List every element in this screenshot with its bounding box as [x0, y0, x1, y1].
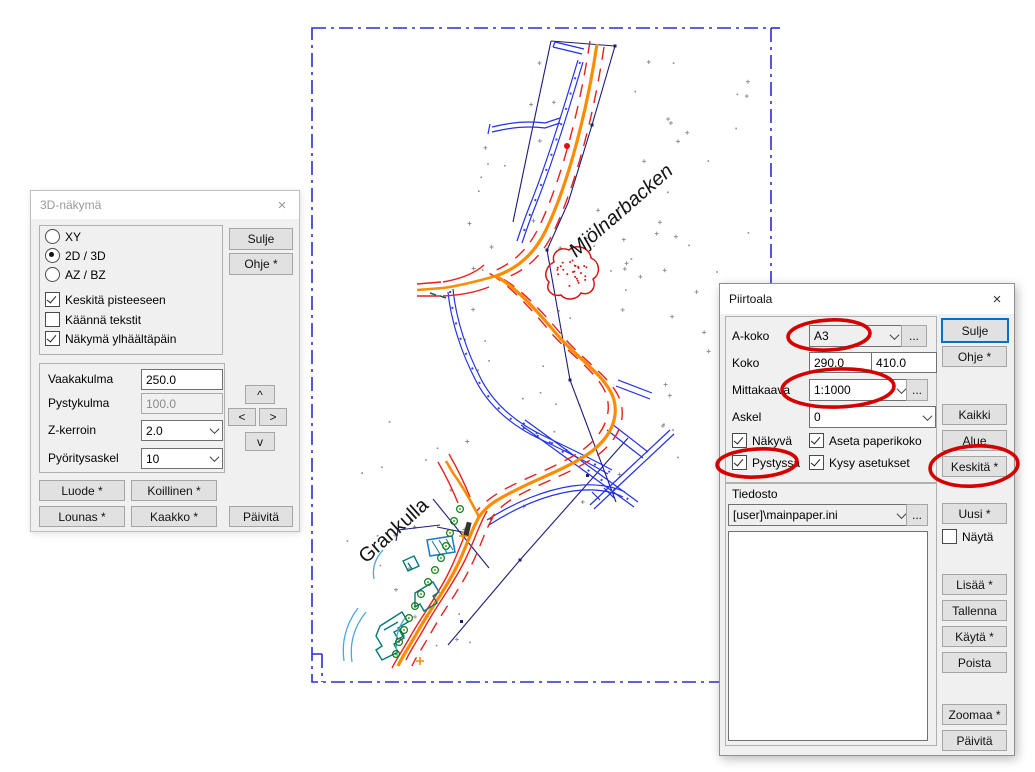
checkbox-aseta-paperikoko[interactable]: Aseta paperikoko [809, 433, 922, 448]
pyoritysaskel-value: 10 [146, 452, 159, 466]
paper-border [312, 28, 780, 682]
chevron-down-icon [890, 330, 900, 340]
app-window: { "map": { "labels": [ { "text": "Mjölna… [0, 0, 1035, 772]
kayta-button[interactable]: Käytä * [942, 626, 1007, 647]
radio-2d3d-circle[interactable] [45, 248, 60, 263]
dialog-3d-nakyma: 3D-näkymä × XY 2D / 3D AZ / BZ Keskitä p… [30, 190, 300, 532]
dialog-piirtoala-titlebar[interactable]: Piirtoala × [720, 284, 1014, 314]
terrain-point-cloud [347, 60, 750, 646]
pystykulma-value: 100.0 [146, 397, 176, 411]
chevron-down-icon [923, 411, 933, 421]
luode-button[interactable]: Luode * [39, 480, 125, 501]
vaakakulma-value: 250.0 [146, 373, 176, 387]
checkbox-pystyssa[interactable]: Pystyssä [732, 455, 800, 470]
dialog-piirtoala-title: Piirtoala [720, 292, 772, 306]
tiedosto-more-button[interactable]: ... [906, 504, 928, 526]
kaakko-button[interactable]: Kaakko * [131, 506, 217, 527]
orange-cross-markers [416, 532, 467, 665]
checkbox-kysy-asetukset[interactable]: Kysy asetukset [809, 455, 910, 470]
ditch-ticks [450, 62, 636, 505]
radio-xy[interactable]: XY [45, 229, 81, 244]
chevron-down-icon [210, 452, 220, 462]
checkbox-keskita-pisteeseen-box[interactable] [45, 292, 60, 307]
hatched-building [427, 536, 455, 556]
checkbox-kaanna-tekstit[interactable]: Käännä tekstit [45, 312, 141, 327]
mittakaava-select[interactable]: 1:1000 [809, 379, 910, 401]
tiedosto-value: [user]\mainpaper.ini [733, 508, 838, 522]
a-koko-select[interactable]: A3 [809, 325, 903, 347]
shore-arcs [343, 550, 405, 662]
keskita-button[interactable]: Keskitä * [942, 456, 1007, 477]
radio-azbz-circle[interactable] [45, 267, 60, 282]
dialog-3d-title: 3D-näkymä [31, 198, 101, 212]
red-stipple-dots [556, 260, 587, 287]
koko-label: Koko [732, 356, 759, 370]
radio-xy-circle[interactable] [45, 229, 60, 244]
sulje-button[interactable]: Sulje [941, 318, 1009, 343]
a-koko-label: A-koko [732, 329, 769, 343]
kaikki-button[interactable]: Kaikki [942, 404, 1007, 425]
checkbox-kaanna-tekstit-label: Käännä tekstit [65, 313, 141, 327]
rotate-down-button[interactable]: v [245, 432, 275, 451]
checkbox-pystyssa-box[interactable] [732, 455, 747, 470]
vaakakulma-input[interactable]: 250.0 [141, 369, 223, 390]
road-edges [392, 41, 622, 668]
tree-markers [393, 506, 464, 658]
checkbox-kysy-asetukset-label: Kysy asetukset [829, 456, 910, 470]
checkbox-nakyma-ylhaaltapain[interactable]: Näkymä ylhäältäpäin [45, 331, 176, 346]
chevron-down-icon [210, 424, 220, 434]
radio-azbz-label: AZ / BZ [65, 268, 106, 282]
paivita-button[interactable]: Päivitä [942, 730, 1007, 751]
a-koko-value: A3 [814, 329, 829, 343]
mittakaava-more-button[interactable]: ... [906, 379, 928, 401]
vaakakulma-label: Vaakakulma [48, 372, 113, 386]
culvert [463, 522, 471, 537]
koko-width-input[interactable]: 290.0 [809, 352, 875, 373]
close-icon[interactable]: × [980, 292, 1014, 307]
pystykulma-label: Pystykulma [48, 396, 109, 410]
radio-azbz[interactable]: AZ / BZ [45, 267, 106, 282]
dialog-piirtoala: Piirtoala × A-koko A3 ... Koko 290.0 410… [719, 283, 1015, 756]
askel-select[interactable]: 0 [809, 406, 936, 428]
pystykulma-input: 100.0 [141, 393, 223, 414]
koko-height-value: 410.0 [876, 356, 906, 370]
map-label-mjolnarbacken: Mjölnarbacken [565, 160, 678, 262]
blue-ditches [448, 42, 674, 525]
boundary-nodes [460, 45, 617, 624]
koko-height-input[interactable]: 410.0 [871, 352, 937, 373]
checkbox-keskita-pisteeseen[interactable]: Keskitä pisteeseen [45, 292, 166, 307]
boundary-lines [396, 41, 628, 645]
mittakaava-value: 1:1000 [814, 383, 851, 397]
checkbox-nayta-label: Näytä [962, 530, 993, 544]
checkbox-kaanna-tekstit-box[interactable] [45, 312, 60, 327]
pyoritysaskel-label: Pyöritysaskel [48, 451, 119, 465]
paivita-button[interactable]: Päivitä [229, 506, 293, 527]
uusi-button[interactable]: Uusi * [942, 503, 1007, 524]
map-label-grankulla: Grankulla [355, 494, 434, 568]
a-koko-more-button[interactable]: ... [901, 325, 927, 347]
main-road [398, 44, 615, 666]
rotate-right-button[interactable]: > [259, 408, 287, 426]
zoomaa-button[interactable]: Zoomaa * [942, 704, 1007, 725]
askel-label: Askel [732, 410, 761, 424]
z-kerroin-label: Z-kerroin [48, 423, 96, 437]
rotate-up-button[interactable]: ^ [245, 385, 275, 404]
close-icon[interactable]: × [265, 198, 299, 213]
checkbox-pystyssa-label: Pystyssä [752, 456, 800, 470]
tallenna-button[interactable]: Tallenna [942, 600, 1007, 621]
dialog-3d-titlebar[interactable]: 3D-näkymä × [31, 191, 299, 219]
z-kerroin-select[interactable]: 2.0 [141, 420, 223, 441]
checkbox-nakyva[interactable]: Näkyvä [732, 433, 792, 448]
checkbox-aseta-paperikoko-box[interactable] [809, 433, 824, 448]
radio-2d3d-label: 2D / 3D [65, 249, 106, 263]
radio-2d3d[interactable]: 2D / 3D [45, 248, 106, 263]
z-kerroin-value: 2.0 [146, 424, 163, 438]
checkbox-nakyma-ylhaaltapain-label: Näkymä ylhäältäpäin [65, 332, 176, 346]
koillinen-button[interactable]: Koillinen * [131, 480, 217, 501]
checkbox-keskita-pisteeseen-label: Keskitä pisteeseen [65, 293, 166, 307]
pyoritysaskel-select[interactable]: 10 [141, 448, 223, 469]
checkbox-nakyma-ylhaaltapain-box[interactable] [45, 331, 60, 346]
lisaa-button[interactable]: Lisää * [942, 574, 1007, 595]
tiedosto-label: Tiedosto [732, 487, 778, 501]
red-point-marker [564, 143, 570, 149]
tiedosto-select[interactable]: [user]\mainpaper.ini [728, 504, 910, 526]
askel-value: 0 [814, 410, 821, 424]
checkbox-kysy-asetukset-box[interactable] [809, 455, 824, 470]
lounas-button[interactable]: Lounas * [39, 506, 125, 527]
alue-button[interactable]: Alue [942, 430, 1007, 451]
ohje-button[interactable]: Ohje * [229, 253, 293, 275]
chevron-down-icon [897, 384, 907, 394]
red-stippled-area [546, 247, 599, 299]
mittakaava-label: Mittakaava [732, 383, 790, 397]
checkbox-nayta-box[interactable] [942, 529, 957, 544]
sulje-button[interactable]: Sulje [229, 228, 293, 250]
chevron-down-icon [897, 509, 907, 519]
checkbox-nakyva-label: Näkyvä [752, 434, 792, 448]
checkbox-aseta-paperikoko-label: Aseta paperikoko [829, 434, 922, 448]
ohje-button[interactable]: Ohje * [942, 346, 1007, 367]
koko-width-value: 290.0 [814, 356, 844, 370]
poista-button[interactable]: Poista [942, 652, 1007, 673]
buildings [376, 556, 439, 660]
checkbox-nakyva-box[interactable] [732, 433, 747, 448]
checkbox-nayta[interactable]: Näytä [942, 529, 993, 544]
green-dashes [430, 293, 446, 298]
rotate-left-button[interactable]: < [228, 408, 256, 426]
paper-list-box[interactable] [728, 531, 928, 741]
radio-xy-label: XY [65, 230, 81, 244]
